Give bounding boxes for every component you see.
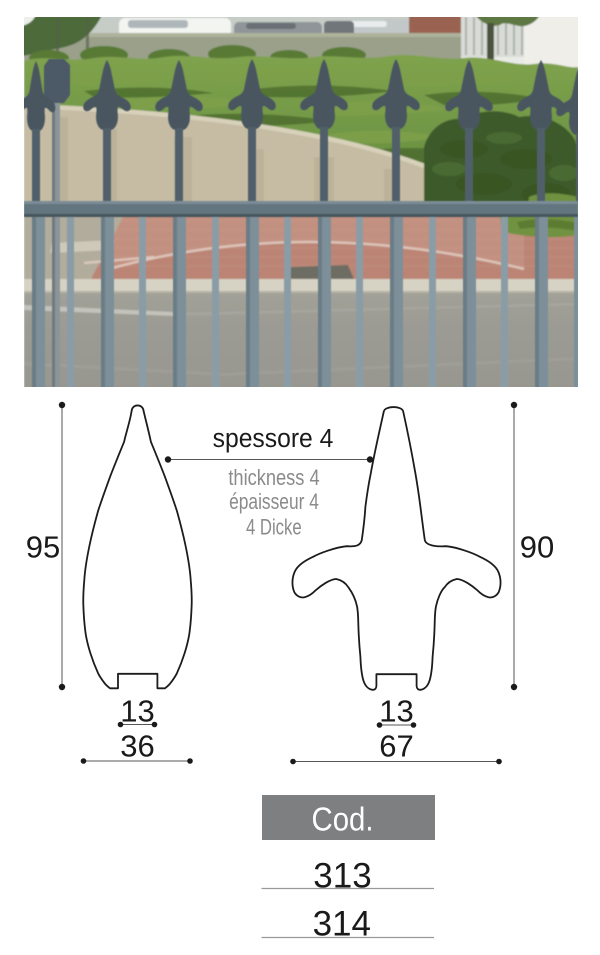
svg-text:Cod.: Cod. [311, 801, 373, 838]
svg-text:13: 13 [120, 694, 154, 729]
svg-text:313: 313 [313, 857, 371, 896]
svg-text:4 Dicke: 4 Dicke [246, 515, 302, 540]
svg-text:13: 13 [379, 694, 413, 729]
svg-text:95: 95 [26, 530, 60, 565]
svg-text:90: 90 [520, 530, 554, 565]
svg-text:spessore 4: spessore 4 [213, 424, 334, 453]
svg-text:36: 36 [120, 729, 154, 764]
svg-text:67: 67 [379, 729, 413, 764]
svg-text:thickness 4: thickness 4 [228, 467, 319, 491]
svg-text:épaisseur 4: épaisseur 4 [229, 490, 319, 514]
